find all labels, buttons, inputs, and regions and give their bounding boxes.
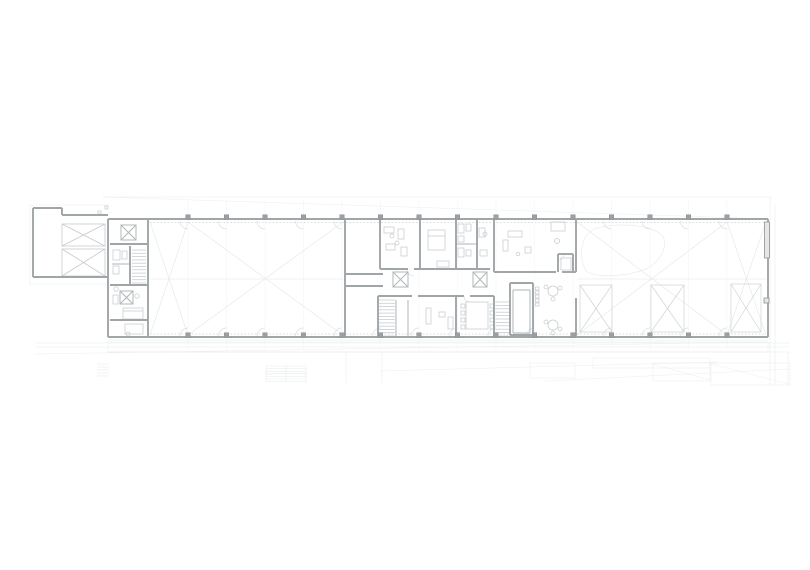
furniture <box>98 206 571 336</box>
organic-blob <box>582 225 665 276</box>
annex-cross-boxes <box>62 224 105 276</box>
door-swing-arcs <box>180 221 727 336</box>
hall-cross-boxes <box>580 284 761 332</box>
faint-rects <box>108 342 790 385</box>
grid-verticals <box>188 200 727 350</box>
faint-outline-lines <box>30 197 790 385</box>
drawing-sheet <box>0 0 810 570</box>
floor-plan-svg <box>0 0 810 570</box>
thin-partitions <box>112 244 530 337</box>
